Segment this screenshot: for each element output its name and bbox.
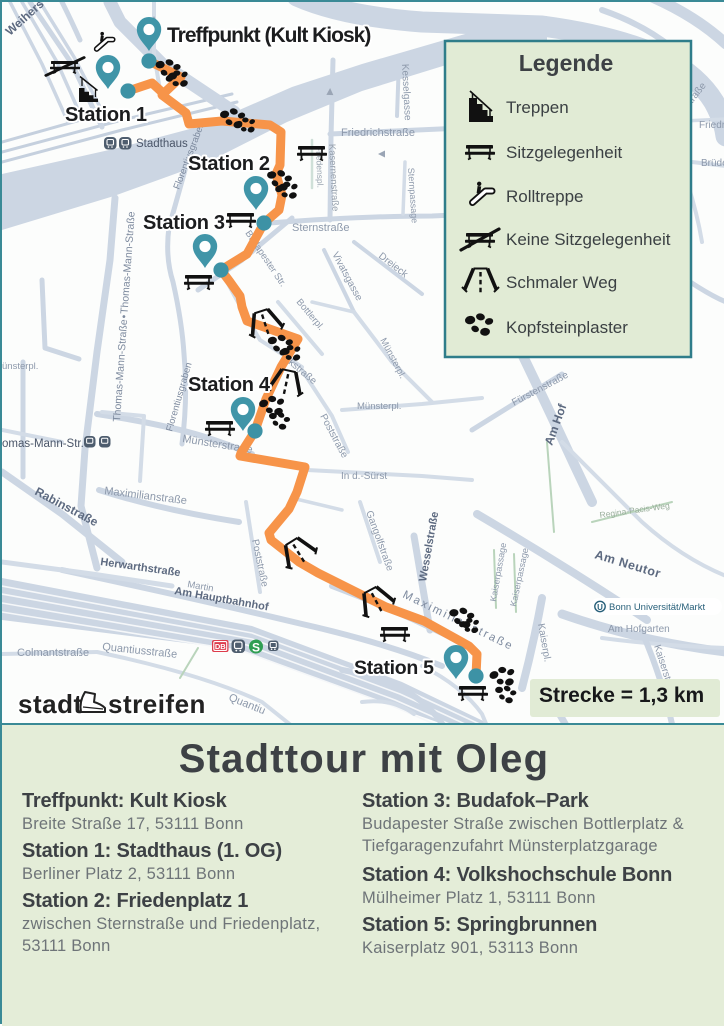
svg-text:Münsterpl.: Münsterpl.	[357, 401, 401, 412]
svg-text:DB: DB	[215, 642, 226, 651]
svg-text:Brüde: Brüde	[701, 158, 724, 169]
svg-text:Kopfsteinplaster: Kopfsteinplaster	[506, 318, 628, 337]
svg-text:Am Hofgarten: Am Hofgarten	[608, 624, 670, 635]
svg-text:Friedr: Friedr	[699, 120, 724, 131]
svg-text:stadt: stadt	[18, 689, 83, 719]
svg-text:Friedenspl.: Friedenspl.	[314, 146, 325, 188]
svg-text:S: S	[252, 640, 260, 654]
svg-text:Schmaler Weg: Schmaler Weg	[506, 273, 617, 292]
svg-text:Legende: Legende	[519, 50, 614, 76]
svg-text:Rolltreppe: Rolltreppe	[506, 187, 584, 206]
svg-text:Station 1: Station 1	[65, 104, 147, 126]
svg-text:Strecke = 1,3 km: Strecke = 1,3 km	[539, 684, 704, 707]
svg-text:ünsterpl.: ünsterpl.	[2, 361, 38, 372]
svg-text:Colmantstraße: Colmantstraße	[17, 647, 89, 659]
svg-text:Sternstraße: Sternstraße	[292, 222, 349, 234]
svg-text:In d.-Sürst: In d.-Sürst	[341, 471, 387, 482]
svg-text:Station 3: Station 3	[143, 212, 225, 234]
svg-text:Station 2: Station 2	[188, 153, 270, 175]
svg-text:Friedrichstraße: Friedrichstraße	[341, 127, 415, 139]
svg-text:Treffpunkt (Kult Kiosk): Treffpunkt (Kult Kiosk)	[167, 24, 370, 47]
svg-text:Treppen: Treppen	[506, 98, 569, 117]
svg-text:streifen: streifen	[108, 689, 206, 719]
svg-text:Keine Sitzgelegenheit: Keine Sitzgelegenheit	[506, 230, 671, 249]
svg-text:omas-Mann-Str.: omas-Mann-Str.	[2, 438, 84, 450]
svg-text:Stadthaus: Stadthaus	[136, 138, 188, 150]
svg-text:Station 5: Station 5	[354, 657, 434, 679]
svg-text:Station 4: Station 4	[188, 374, 271, 396]
svg-text:U: U	[597, 603, 603, 612]
svg-text:Sitzgelegenheit: Sitzgelegenheit	[506, 143, 623, 162]
svg-text:Bonn Universität/Markt: Bonn Universität/Markt	[609, 602, 705, 613]
